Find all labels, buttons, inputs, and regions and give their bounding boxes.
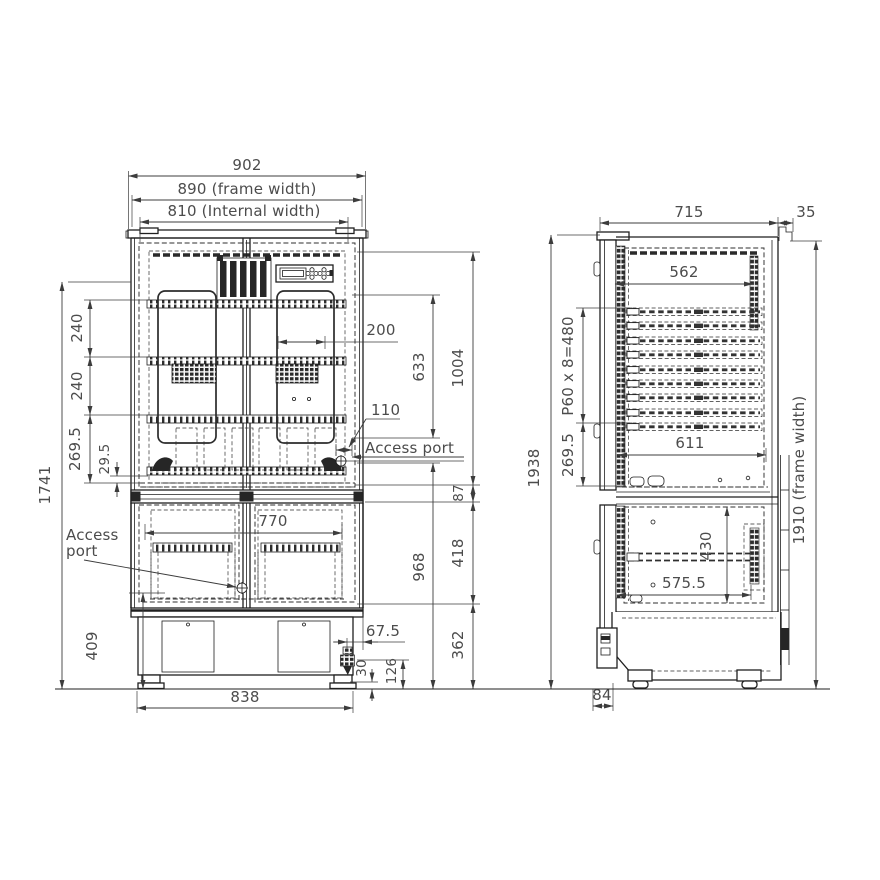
top-frame: [128, 230, 366, 238]
dim-frame-height: 1910 (frame width): [790, 396, 808, 545]
slide-rail: [626, 337, 762, 345]
front-view: [126, 228, 368, 689]
dim-door-height: 1741: [36, 466, 54, 505]
inner-liner-lower-left: [139, 505, 239, 602]
dim-bottom-section: 269.5: [66, 427, 84, 471]
divider-band: [131, 490, 363, 503]
dim-port-offset: 110: [371, 401, 400, 419]
base-side: [612, 612, 781, 688]
hinge-knuckle-3: [594, 540, 600, 554]
slide-rail: [626, 409, 762, 417]
dim-633: 633: [410, 352, 428, 381]
slide-rail: [626, 366, 762, 374]
dimension-drawing: 902 890 (frame width) 810 (Internal widt…: [0, 0, 880, 880]
drawing-canvas: 902 890 (frame width) 810 (Internal widt…: [0, 0, 880, 880]
access-port-left-label-2: port: [66, 542, 98, 560]
wall-spacer-bracket: [779, 227, 792, 241]
dim-depth: 715: [674, 203, 703, 221]
dim-base-section-height: 362: [449, 630, 467, 659]
door-control-box: [597, 628, 617, 668]
back-rail-lower: [750, 528, 759, 584]
dim-shelf-pitch-top: 240: [68, 313, 86, 342]
dim-drain-offset: 67.5: [366, 622, 400, 640]
dim-inner-depth-top: 562: [669, 263, 698, 281]
door-lower: [600, 505, 616, 630]
dim-inner-depth: 611: [675, 434, 704, 452]
display: [280, 268, 306, 279]
dim-lower-inner-height-side: 430: [697, 531, 715, 560]
dim-foot-span: 838: [230, 688, 259, 706]
door-top-cap: [597, 232, 629, 240]
slide-rail: [626, 351, 762, 359]
caster-front: [633, 681, 648, 688]
dim-frame-width: 890 (frame width): [177, 180, 316, 198]
shelf-rail-3: [147, 415, 346, 423]
dim-lower-inner-depth: 575.5: [662, 574, 706, 592]
heater-left: [172, 364, 216, 383]
door-upper: [600, 240, 616, 490]
dim-bottom-section-side: 269.5: [559, 433, 577, 477]
slide-rail: [626, 380, 762, 388]
dim-duct-width: 200: [366, 321, 395, 339]
dim-wall-clearance: 35: [796, 203, 816, 221]
slide-rail: [626, 423, 762, 431]
dim-drain-height: 126: [384, 658, 400, 684]
slide-rail: [626, 394, 762, 402]
dim-base-height: 409: [83, 631, 101, 660]
dim-floor-clearance: 29.5: [97, 444, 113, 475]
control-panel: [276, 265, 333, 282]
dim-lower-inner-height: 418: [449, 538, 467, 567]
shelf-rail-1: [147, 300, 346, 308]
heater-right: [276, 364, 318, 383]
hinge-right: [336, 228, 354, 234]
dim-internal-width: 810 (Internal width): [167, 202, 320, 220]
lower-shelf-left: [153, 543, 232, 552]
base: [131, 608, 363, 689]
hinge-knuckle-1: [594, 262, 600, 276]
lower-shelf-right: [261, 543, 340, 552]
side-view: [594, 227, 792, 688]
dim-rail-pitch: P60 x 8=480: [559, 316, 577, 416]
slide-rail: [626, 308, 762, 316]
caster-back: [742, 681, 757, 688]
back-rail-upper: [750, 256, 758, 330]
dim-lower-internal-width: 770: [258, 512, 287, 530]
shelf-rail-4: [147, 467, 346, 475]
dim-shelf-pitch-mid: 240: [68, 371, 86, 400]
back-panel-strip: [781, 455, 790, 665]
dim-drain-clearance: 30: [354, 659, 370, 677]
dim-overall-height: 1938: [525, 449, 543, 488]
dim-lower-section-height: 968: [410, 552, 428, 581]
slide-rail: [626, 322, 762, 330]
foot-left: [138, 675, 164, 689]
hinge-knuckle-2: [594, 424, 600, 438]
fan-grille: [217, 255, 271, 300]
bottom-slots: [176, 428, 336, 470]
power-key: [330, 270, 334, 276]
dim-overall-width: 902: [232, 156, 261, 174]
dim-divider-height: 87: [451, 484, 467, 502]
dim-upper-inner-height: 1004: [449, 349, 467, 388]
access-port-right-label: Access port: [365, 439, 454, 457]
hinge-left: [140, 228, 158, 234]
